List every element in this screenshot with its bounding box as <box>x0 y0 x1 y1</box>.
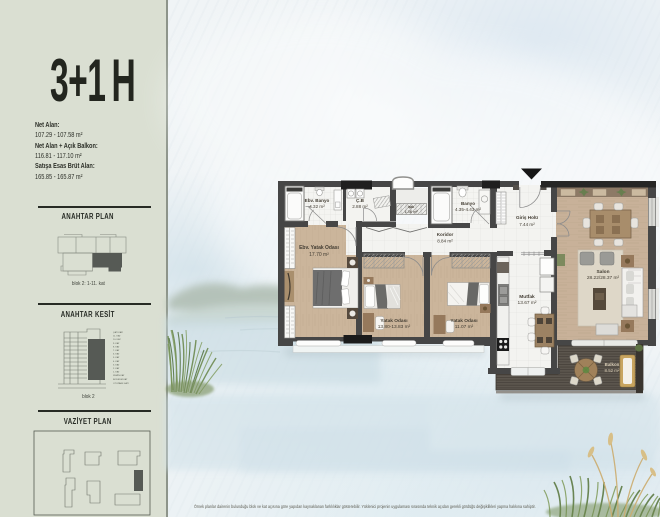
svg-text:11.07 m²: 11.07 m² <box>455 324 474 330</box>
svg-text:Salon: Salon <box>596 269 609 275</box>
svg-text:11. KAT: 11. KAT <box>113 335 121 338</box>
svg-text:ZEMİN KAT: ZEMİN KAT <box>113 374 125 377</box>
svg-text:Ebv. Yatak Odası: Ebv. Yatak Odası <box>299 245 339 251</box>
svg-text:Giriş Holü: Giriş Holü <box>516 215 538 220</box>
svg-text:4.35-4.43 m²: 4.35-4.43 m² <box>455 207 482 212</box>
svg-text:10. KAT: 10. KAT <box>113 338 121 341</box>
svg-text:2.88 m²: 2.88 m² <box>352 204 368 209</box>
svg-text:28.22/28.37 m²: 28.22/28.37 m² <box>587 275 620 281</box>
svg-text:OTOPARK KATI: OTOPARK KATI <box>113 382 129 385</box>
svg-text:1.36 m²: 1.36 m² <box>404 209 418 214</box>
svg-text:Koridor: Koridor <box>437 232 454 237</box>
svg-text:Mutfak: Mutfak <box>519 294 535 300</box>
svg-text:13.67 m²: 13.67 m² <box>518 300 537 306</box>
svg-text:7.44 m²: 7.44 m² <box>519 222 535 227</box>
svg-text:Yatak Odası: Yatak Odası <box>450 318 477 324</box>
svg-text:BODRUM KAT: BODRUM KAT <box>113 378 128 381</box>
svg-text:6. KAT: 6. KAT <box>113 353 120 356</box>
svg-text:Yatak Odası: Yatak Odası <box>380 318 407 324</box>
svg-text:5. KAT: 5. KAT <box>113 356 120 359</box>
svg-text:Ebv. Banyo: Ebv. Banyo <box>305 198 330 203</box>
svg-text:13.80-13.83 m²: 13.80-13.83 m² <box>378 324 411 330</box>
svg-text:17.70 m²: 17.70 m² <box>309 252 329 258</box>
svg-text:4.32 m²: 4.32 m² <box>309 204 325 209</box>
svg-text:8.52 m²: 8.52 m² <box>605 368 620 373</box>
svg-text:2. KAT: 2. KAT <box>113 367 120 370</box>
svg-text:8. KAT: 8. KAT <box>113 345 120 348</box>
svg-text:3. KAT: 3. KAT <box>113 363 120 366</box>
svg-text:ÇATI KATI: ÇATI KATI <box>113 331 124 334</box>
svg-text:8.84 m²: 8.84 m² <box>437 239 453 244</box>
svg-text:7. KAT: 7. KAT <box>113 349 120 352</box>
svg-text:Balkon: Balkon <box>605 362 620 367</box>
svg-text:Banyo: Banyo <box>461 201 475 206</box>
svg-text:Ç.B: Ç.B <box>356 198 365 203</box>
svg-text:9. KAT: 9. KAT <box>113 342 120 345</box>
svg-text:1. KAT: 1. KAT <box>113 371 120 374</box>
svg-text:4. KAT: 4. KAT <box>113 360 120 363</box>
